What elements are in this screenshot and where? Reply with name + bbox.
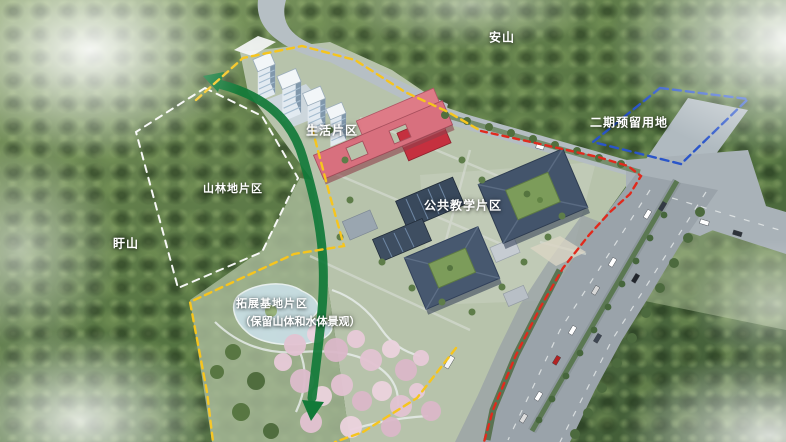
label-mountain-west: 盱山 [113,235,139,252]
label-expansion-zone: 拓展基地片区 [236,295,308,311]
label-phase2-reserved: 二期预留用地 [590,114,668,131]
label-forest-zone: 山林地片区 [203,180,263,196]
label-expansion-zone-note: （保留山体和水体景观） [240,313,361,329]
site-plan-layers [0,0,786,442]
label-living-zone: 生活片区 [306,122,358,139]
label-mountain-north: 安山 [489,29,515,46]
campus-masterplan-aerial-view: 安山 二期预留用地 生活片区 山林地片区 盱山 公共教学片区 拓展基地片区 （保… [0,0,786,442]
label-teaching-zone: 公共教学片区 [424,197,502,214]
